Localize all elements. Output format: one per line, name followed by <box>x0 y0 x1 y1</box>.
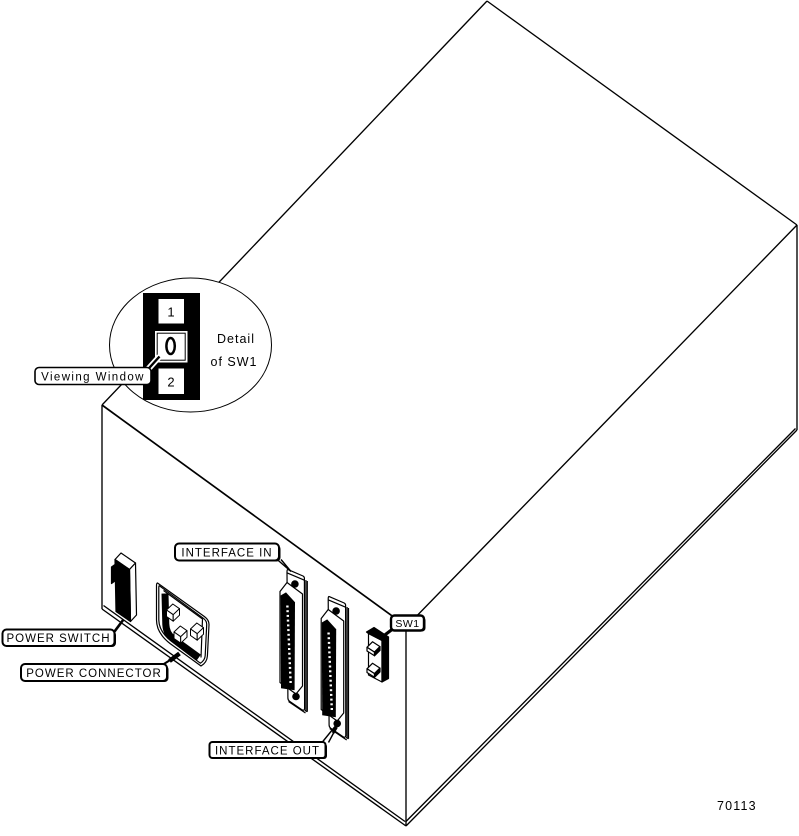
svg-text:1: 1 <box>167 305 174 320</box>
svg-text:Viewing Window: Viewing Window <box>41 372 145 384</box>
svg-text:Detail: Detail <box>217 332 255 346</box>
svg-text:POWER CONNECTOR: POWER CONNECTOR <box>26 668 162 680</box>
svg-text:POWER SWITCH: POWER SWITCH <box>7 633 111 645</box>
svg-text:of SW1: of SW1 <box>211 355 258 369</box>
svg-text:2: 2 <box>167 375 174 390</box>
svg-text:70113: 70113 <box>717 799 757 813</box>
svg-text:SW1: SW1 <box>395 618 419 630</box>
svg-text:INTERFACE OUT: INTERFACE OUT <box>215 746 320 758</box>
svg-text:INTERFACE IN: INTERFACE IN <box>181 548 272 560</box>
